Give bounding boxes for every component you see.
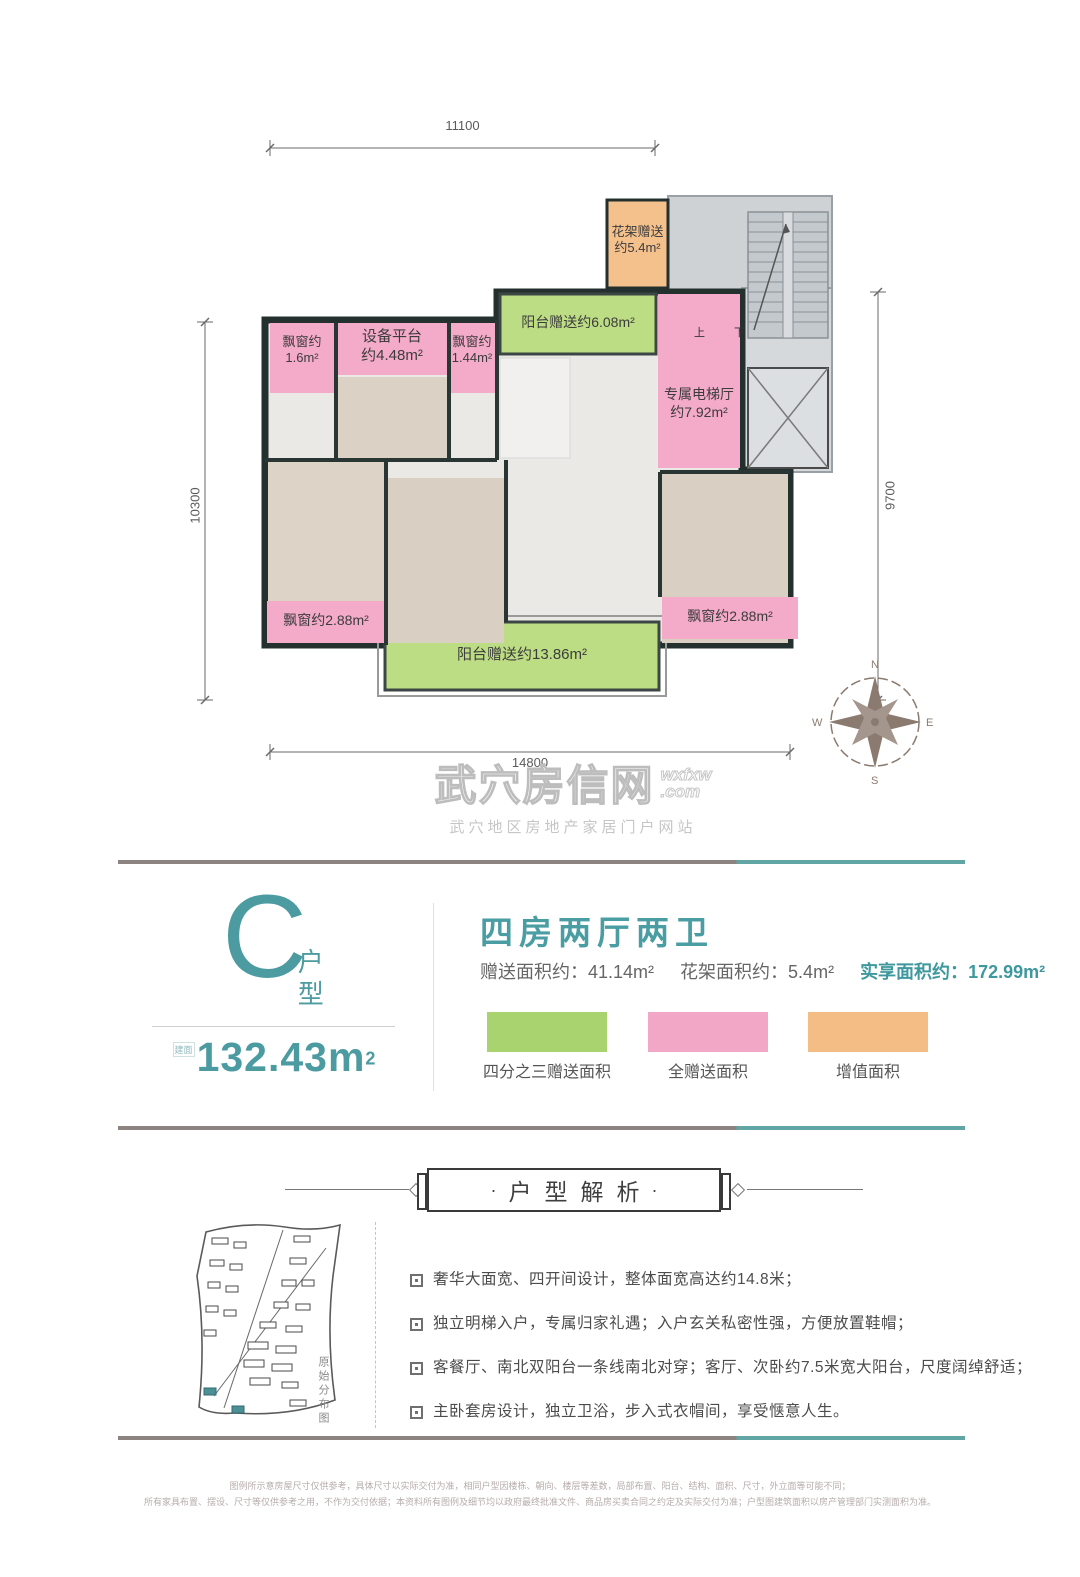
disclaimer-line-1: 图例所示意房屋尺寸仅供参考，具体尺寸以实际交付为准，相同户型因楼栋、朝向、楼层等…	[0, 1478, 1080, 1494]
equipment-platform-label: 设备平台 约4.48m²	[336, 328, 448, 366]
dimension-top-label: 11100	[270, 118, 655, 133]
unit-area: 建面132.43m2	[140, 1034, 408, 1081]
square-bullet-icon	[410, 1274, 423, 1287]
area-prefix-badge: 建面	[173, 1042, 195, 1057]
disclaimer: 图例所示意房屋尺寸仅供参考，具体尺寸以实际交付为准，相同户型因楼栋、朝向、楼层等…	[0, 1478, 1080, 1510]
bullet-item-4: 主卧套房设计，独立卫浴，步入式衣帽间，享受惬意人生。	[410, 1402, 1035, 1423]
compass-s: S	[871, 775, 878, 787]
flyer-page: N E S W 11100 10300 9700 14800 花架赠送 约5.4…	[0, 0, 1080, 1577]
square-bullet-icon	[410, 1406, 423, 1419]
unit-type-label: 户型	[292, 948, 325, 1012]
disclaimer-line-2: 所有家具布置、摆设、尺寸等仅供参考之用，不作为交付依据；本资料所有图例及细节均以…	[0, 1494, 1080, 1510]
square-bullet-icon	[410, 1318, 423, 1331]
north-balcony-label: 阳台赠送约6.08m²	[500, 314, 656, 332]
watermark-title: 武穴房信网	[434, 752, 654, 813]
bay-window-2-label: 飘窗约 1.44m²	[446, 334, 498, 367]
divider-middle	[118, 1126, 965, 1130]
legend-swatch-green	[487, 1012, 607, 1052]
legend-swatch-orange	[808, 1012, 928, 1052]
compass-n: N	[871, 659, 879, 671]
bay-window-1-label: 飘窗约 1.6m²	[270, 334, 334, 367]
analysis-title-banner: · 户型解析 ·	[427, 1168, 721, 1212]
legend-label-pink: 全赠送面积	[628, 1058, 788, 1082]
analysis-title: 户型解析	[509, 1173, 653, 1207]
elevator-hall-label: 专属电梯厅 约7.92m²	[658, 386, 740, 421]
bullet-item-2: 独立明梯入户，专属归家礼遇；入户玄关私密性强，方便放置鞋帽；	[410, 1314, 1035, 1335]
compass-rose: N E S W	[812, 659, 933, 787]
bullet-item-3: 客餐厅、南北双阳台一条线南北对穿；客厅、次卧约7.5米宽大阳台，尺度阔绰舒适；	[410, 1358, 1035, 1379]
watermark-domain: wxfxw .com	[660, 766, 711, 800]
bullet-item-1: 奢华大面宽、四开间设计，整体面宽高达约14.8米；	[410, 1270, 1035, 1291]
analysis-bullet-list: 奢华大面宽、四开间设计，整体面宽高达约14.8米； 独立明梯入户，专属归家礼遇；…	[410, 1270, 1035, 1446]
legend-swatch-pink	[648, 1012, 768, 1052]
banner-dot-left: ·	[491, 1180, 497, 1201]
watermark-logo: 武穴房信网 wxfxw .com 武穴地区房地产家居门户网站	[408, 752, 738, 837]
legend-label-green: 四分之三赠送面积	[467, 1058, 627, 1082]
elevator-hall-zone	[658, 294, 740, 468]
square-bullet-icon	[410, 1362, 423, 1375]
unit-headline: 四房两厅两卫	[480, 906, 714, 954]
compass-w: W	[812, 717, 823, 729]
divider-top	[118, 860, 965, 864]
stair-up-label: 上	[694, 324, 705, 340]
site-map-caption: 原始分布图	[315, 1356, 331, 1426]
south-balcony-label: 阳台赠送约13.86m²	[385, 646, 659, 665]
legend-label-orange: 增值面积	[788, 1058, 948, 1082]
stat-flower-area: 花架面积约：5.4m²	[680, 958, 834, 984]
dimension-left-label: 10300	[188, 461, 203, 551]
bay-window-4-label: 飘窗约2.88m²	[662, 608, 798, 626]
banner-dot-right: ·	[652, 1180, 658, 1201]
watermark-subtitle: 武穴地区房地产家居门户网站	[408, 816, 738, 837]
area-stats: 赠送面积约：41.14m² 花架面积约：5.4m² 实享面积约：172.99m²	[480, 958, 1045, 984]
unit-area-sup: 2	[365, 1049, 375, 1069]
stat-real-area: 实享面积约：172.99m²	[860, 958, 1045, 984]
bay-window-3-label: 飘窗约2.88m²	[267, 612, 385, 630]
stat-gift-area: 赠送面积约：41.14m²	[480, 958, 654, 984]
stair-down-label: 下	[734, 324, 745, 340]
flower-rack-label: 花架赠送 约5.4m²	[607, 224, 668, 257]
dimension-right-label: 9700	[883, 451, 898, 541]
unit-area-value: 132.43m	[197, 1034, 366, 1080]
compass-e: E	[926, 717, 933, 729]
elevator-cab	[748, 368, 828, 468]
